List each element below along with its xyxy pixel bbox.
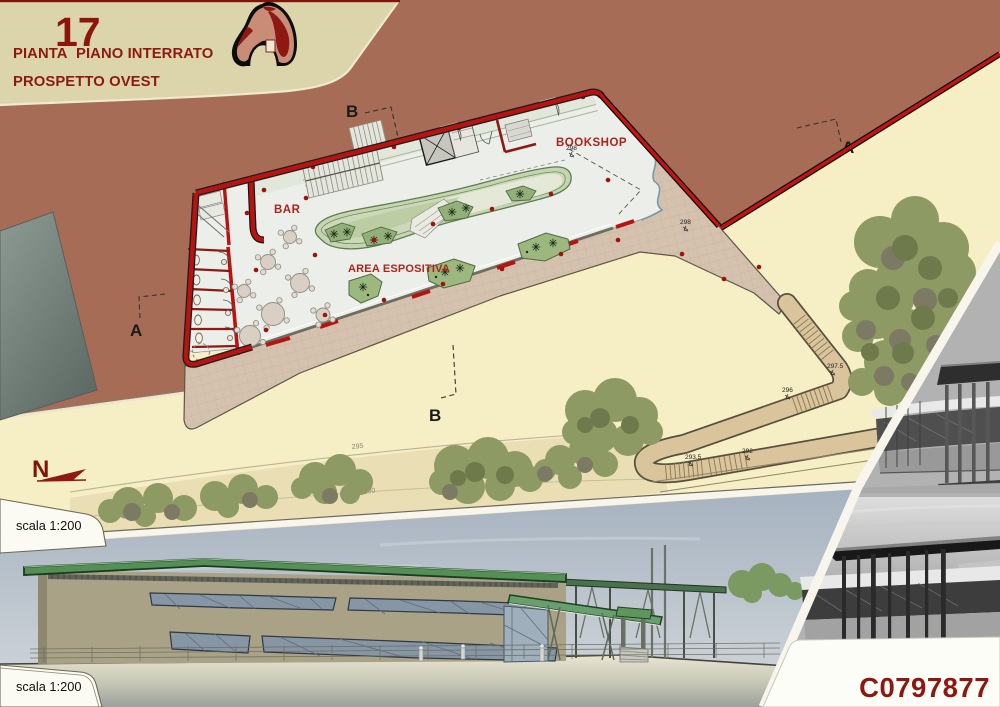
svg-text:293.5: 293.5 — [685, 454, 702, 461]
svg-text:BAR: BAR — [274, 204, 301, 216]
svg-text:C0797877: C0797877 — [859, 672, 990, 703]
svg-text:A: A — [130, 321, 142, 340]
svg-text:298: 298 — [566, 145, 577, 152]
svg-text:295: 295 — [351, 443, 363, 451]
svg-text:PIANTA PIANO INTERRATO: PIANTA PIANO INTERRATO — [13, 46, 213, 62]
svg-text:296: 296 — [782, 387, 793, 394]
svg-text:AREA ESPOSITIVA: AREA ESPOSITIVA — [348, 263, 450, 275]
svg-text:297.5: 297.5 — [827, 363, 844, 370]
svg-text:scala 1:200: scala 1:200 — [16, 518, 81, 533]
svg-text:298: 298 — [680, 219, 691, 226]
svg-text:scala 1:200: scala 1:200 — [16, 679, 81, 694]
svg-text:B: B — [429, 406, 441, 425]
svg-text:PROSPETTO OVEST: PROSPETTO OVEST — [13, 74, 160, 90]
svg-text:292: 292 — [742, 448, 753, 455]
svg-text:B: B — [346, 102, 358, 121]
